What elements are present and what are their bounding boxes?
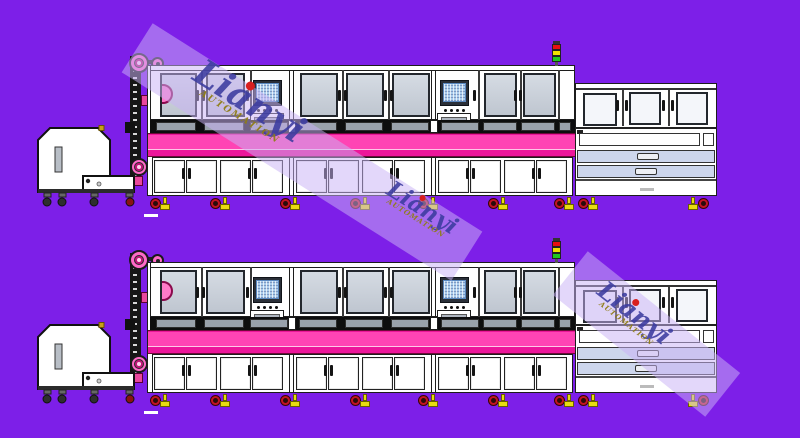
caster-hub [353,398,358,403]
leveling-foot-stem [163,197,167,204]
door-handle [514,287,517,298]
door-handle [338,287,341,298]
door-handle [473,287,476,298]
panel-button [450,109,453,112]
door-handle [662,297,665,308]
leveling-foot [564,401,574,407]
leveling-foot-stem [431,197,435,204]
door-handle [202,287,205,298]
cabinet-door [438,357,469,390]
cabinet-door [154,160,185,193]
panel-button [462,109,465,112]
cabinet-handle [396,365,399,376]
module3-window-2 [523,270,556,314]
service-insert [483,122,517,131]
panel-divider [478,70,480,120]
panel-divider [478,267,480,317]
end-cabinet-midline [575,127,717,129]
end-cabinet-base-mark [640,385,654,388]
end-cabinet-window-1 [583,290,617,323]
cabinet-door [504,160,535,193]
end-cabinet-window-3 [676,289,708,322]
module-post [431,267,436,317]
module3-window-2 [523,73,556,117]
leveling-foot [498,401,508,407]
end-cabinet-recess [579,133,700,146]
caster-hub [581,201,586,206]
cabinet-handle [188,365,191,376]
service-insert [299,122,337,131]
panel-button [456,109,459,112]
end-cabinet-window-3 [676,92,708,125]
door-handle [514,90,517,101]
end-cabinet-baseline [576,179,716,181]
leveling-foot [588,204,598,210]
door-handle [625,297,628,308]
caster-hub [701,398,706,403]
panel-button [275,109,278,112]
leveling-foot-stem [431,394,435,401]
door-handle [390,287,393,298]
module3-window-1 [484,270,517,314]
leveling-foot [220,204,230,210]
leveling-foot-stem [591,394,595,401]
hopper-casters [43,193,134,206]
caster-hub [701,201,706,206]
conveyor-belt-line [148,149,575,150]
leveling-foot [688,204,698,210]
service-insert [391,122,429,131]
module2-window-3 [392,270,430,314]
caster-hub [353,201,358,206]
leveling-foot [564,204,574,210]
module1-window-1 [160,73,197,117]
leveling-foot-stem [567,197,571,204]
end-cabinet-recess-small [703,330,714,343]
caster-hub [153,398,158,403]
panel-button [269,306,272,309]
drawer-2-handle [635,168,657,175]
cabinet-post [431,157,436,196]
leveling-foot-stem [501,394,505,401]
end-cabinet-baseline [576,376,716,378]
door-handle [246,287,249,298]
caster-hub [421,201,426,206]
panel-button [456,306,459,309]
caster-hub [491,201,496,206]
conveyor-belt-line [148,346,575,347]
leveling-foot-stem [501,197,505,204]
cabinet-handle [182,365,185,376]
cabinet-handle [182,168,185,179]
cabinet-handle [390,365,393,376]
panel-button [450,306,453,309]
panel-button [444,109,447,112]
door-handle [616,100,619,111]
cabinet-handle [254,365,257,376]
service-insert [156,122,196,131]
cabinet-post [289,354,294,393]
caster-hub [213,201,218,206]
signal-light-green [552,56,561,62]
caster-hub [153,201,158,206]
end-cabinet-topline [576,88,716,90]
caster-hub [213,398,218,403]
drawer-1-handle [637,153,659,160]
machine-line-row-top [0,40,800,225]
drawer-2-handle [635,365,657,372]
cabinet-handle [254,168,257,179]
caster-hub [557,201,562,206]
service-insert [559,319,571,328]
stage: Lianyi AUTOMATION Lianyi AUTOMATION Lian… [0,0,800,438]
hopper-casters [43,390,134,403]
drawer-1-handle [637,350,659,357]
service-band-joint [288,120,296,133]
cabinet-handle [538,168,541,179]
cabinet-door [220,357,251,390]
service-insert [204,319,244,328]
leveling-foot [588,401,598,407]
leveling-foot-stem [567,394,571,401]
panel-divider [558,267,560,317]
service-insert [441,319,479,328]
module-post [289,70,294,120]
cabinet-door [362,160,393,193]
module2-window-2 [346,73,384,117]
end-cabinet-window-1 [583,93,617,126]
cabinet-handle [248,168,251,179]
cabinet-handle [466,168,469,179]
cabinet-door [362,357,393,390]
service-band-joint [430,120,438,133]
leveling-foot [360,204,370,210]
leveling-foot [428,401,438,407]
door-handle [246,90,249,101]
leveling-foot [688,401,698,407]
leveling-foot-stem [691,197,695,204]
panel-button [263,109,266,112]
leveling-foot-stem [293,197,297,204]
cabinet-door [504,357,535,390]
machine-line-row-bottom [0,237,800,422]
leveling-foot-stem [163,394,167,401]
leveling-foot [360,401,370,407]
conveyor-belt [148,330,575,354]
cabinet-handle [330,168,333,179]
service-insert [250,319,288,328]
cabinet-door [438,160,469,193]
service-insert [559,122,571,131]
caster-hub [421,398,426,403]
leveling-foot [160,401,170,407]
module-post [289,267,294,317]
cabinet-handle [248,365,251,376]
hopper-feeder [35,125,140,210]
service-insert [250,122,288,131]
cabinet-handle [532,365,535,376]
service-band-joint [430,317,438,330]
leveling-foot [220,401,230,407]
signal-light-green [552,253,561,259]
leveling-foot-stem [363,197,367,204]
caster-hub [581,398,586,403]
conveyor-belt-top [148,135,575,149]
leveling-foot-stem [591,197,595,204]
end-cabinet-recess-small [703,133,714,146]
module-post [431,70,436,120]
door-handle [202,90,205,101]
module2-window-1 [300,73,338,117]
caster-hub [283,398,288,403]
service-insert [345,319,383,328]
hmi-screen [256,83,279,102]
module1-window-2 [206,270,245,314]
cabinet-handle [472,365,475,376]
service-insert [521,122,555,131]
end-cabinet-window-2 [629,289,661,322]
panel-button [257,306,260,309]
service-insert [345,122,383,131]
leveling-foot-stem [691,394,695,401]
end-cabinet-divider [668,287,670,323]
door-handle [344,287,347,298]
panel-button [269,109,272,112]
end-cabinet-topline [576,285,716,287]
leveling-foot [428,204,438,210]
cabinet-handle [390,168,393,179]
panel-button [462,306,465,309]
panel-divider [558,70,560,120]
door-handle [384,90,387,101]
door-handle [519,287,522,298]
leveling-foot [498,204,508,210]
module2-window-3 [392,73,430,117]
caster-hub [283,201,288,206]
panel-button [263,306,266,309]
door-handle [671,100,674,111]
caster-hub [557,398,562,403]
door-handle [473,90,476,101]
hmi-screen [443,83,466,102]
leveling-foot-stem [363,394,367,401]
panel-button [257,109,260,112]
panel-button [275,306,278,309]
end-cabinet-recess [579,330,700,343]
cabinet-door [296,160,327,193]
service-band-joint [288,317,296,330]
cabinet-handle [472,168,475,179]
door-handle [662,100,665,111]
door-handle [671,297,674,308]
cabinet-post [289,157,294,196]
door-handle [338,90,341,101]
cabinet-door [296,357,327,390]
leveling-foot-stem [223,394,227,401]
end-cabinet-window-2 [629,92,661,125]
door-handle [196,90,199,101]
service-insert [391,319,429,328]
leveling-foot-stem [293,394,297,401]
hmi-screen [256,280,279,299]
service-insert [441,122,479,131]
cabinet-door [220,160,251,193]
module3-window-1 [484,73,517,117]
leveling-foot [290,401,300,407]
end-cabinet-divider [622,90,624,126]
cabinet-door [154,357,185,390]
dimension-tick [144,214,158,217]
cabinet-handle [324,168,327,179]
module2-window-2 [346,270,384,314]
cabinet-handle [396,168,399,179]
module1-window-1 [160,270,197,314]
end-cabinet-divider [668,90,670,126]
end-cabinet-midline [575,324,717,326]
conveyor-belt-top [148,332,575,346]
cabinet-post [431,354,436,393]
caster-hub [491,398,496,403]
service-insert [483,319,517,328]
door-handle [616,297,619,308]
elevator-top-pulley-center [137,258,141,262]
door-handle [344,90,347,101]
door-handle [196,287,199,298]
cabinet-handle [324,365,327,376]
cabinet-handle [538,365,541,376]
elevator-top-pulley-center [137,61,141,65]
leveling-foot [290,204,300,210]
module1-window-2 [206,73,245,117]
end-cabinet-base-mark [640,188,654,191]
cabinet-handle [330,365,333,376]
cabinet-handle [466,365,469,376]
hopper-feeder [35,322,140,407]
door-handle [384,287,387,298]
leveling-foot [160,204,170,210]
door-handle [625,100,628,111]
door-handle [519,90,522,101]
hmi-screen [443,280,466,299]
dimension-tick [144,411,158,414]
service-insert [521,319,555,328]
porthole [160,84,173,104]
porthole [160,281,173,301]
conveyor-belt [148,133,575,157]
service-insert [156,319,196,328]
service-insert [299,319,337,328]
leveling-foot-stem [223,197,227,204]
cabinet-handle [532,168,535,179]
panel-button [444,306,447,309]
cabinet-handle [188,168,191,179]
end-cabinet-divider [622,287,624,323]
module2-window-1 [300,270,338,314]
door-handle [390,90,393,101]
service-insert [204,122,244,131]
